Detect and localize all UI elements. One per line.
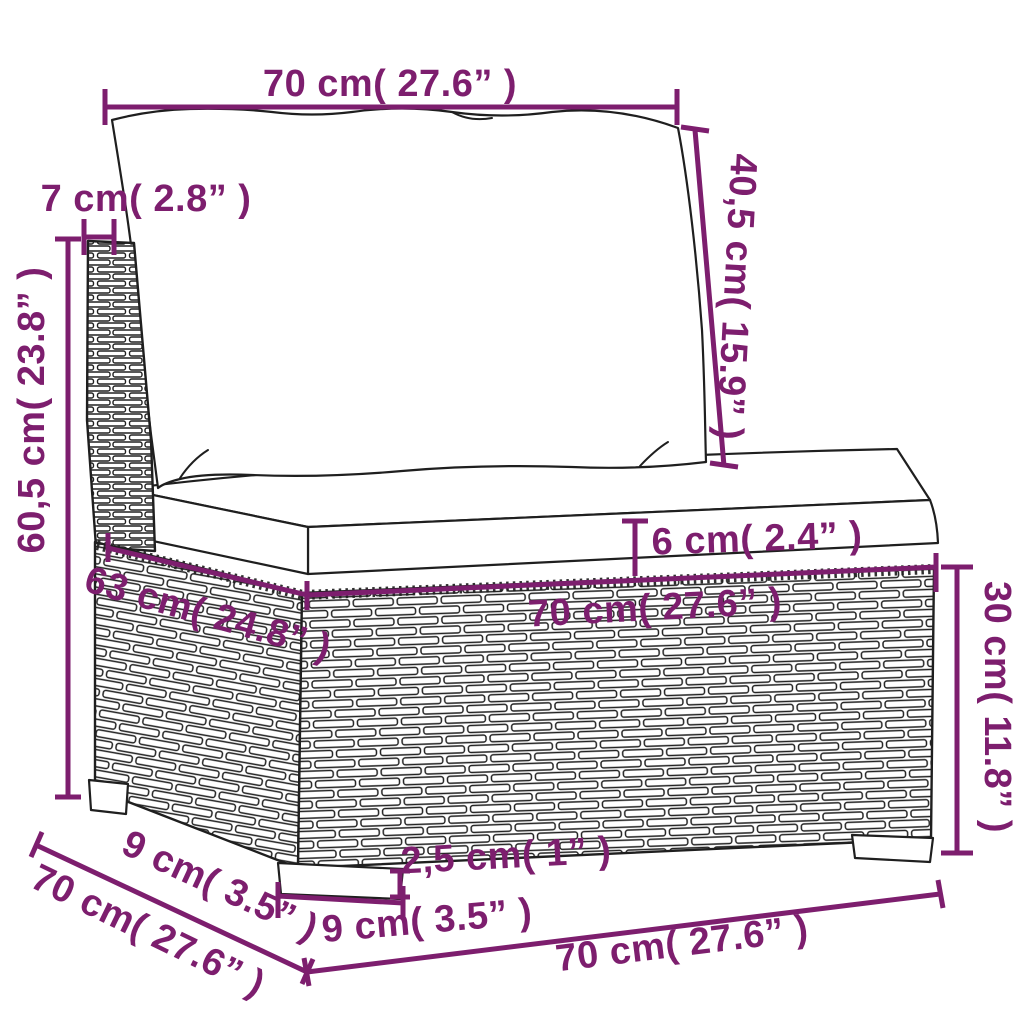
dim-label-base-height: 30 cm( 11.8” ) <box>978 581 1016 833</box>
dimline-base-height <box>941 567 973 853</box>
dim-label-total-height: 60,5 cm( 23.8” ) <box>13 267 51 554</box>
dim-label-seat-cushion-thickness: 6 cm( 2.4” ) <box>651 516 863 561</box>
dim-label-top-width: 70 cm( 27.6” ) <box>263 65 517 103</box>
wicker-base <box>95 542 934 868</box>
dim-label-back-post-depth: 7 cm( 2.8” ) <box>41 180 252 218</box>
dimension-diagram: 70 cm( 27.6” ) 7 cm( 2.8” ) 40,5 cm( 15.… <box>0 0 1024 1024</box>
back-cushion <box>112 109 706 489</box>
dimline-total-height <box>55 239 81 797</box>
